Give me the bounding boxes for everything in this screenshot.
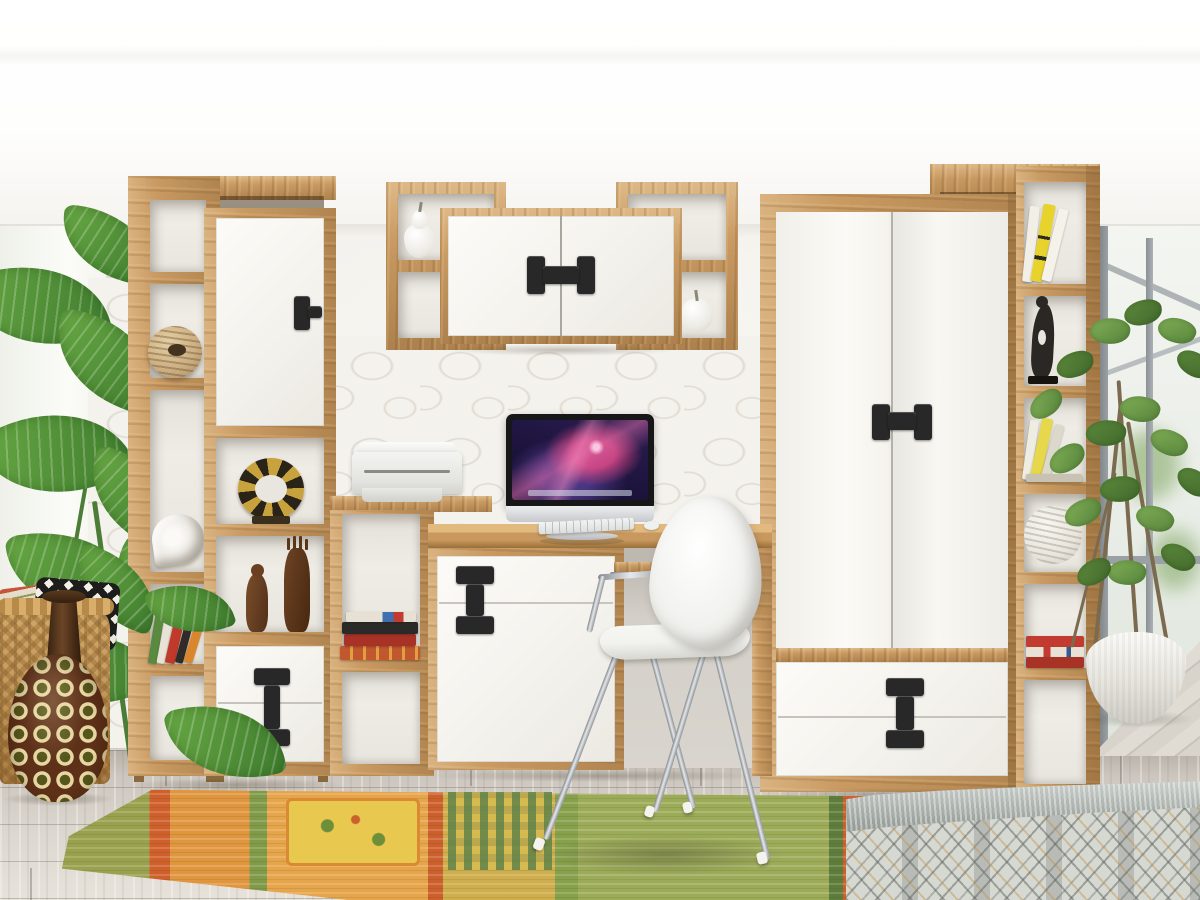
ring-ornament-base bbox=[252, 516, 290, 524]
floor-shadow bbox=[430, 770, 770, 782]
wardrobe-drawer-divider bbox=[778, 716, 1006, 718]
wall-shadow bbox=[448, 344, 678, 356]
rug-checked-band bbox=[448, 792, 552, 870]
bookcase-niche bbox=[1024, 680, 1086, 784]
rug-medallion bbox=[286, 798, 420, 866]
pedestal-handle-cap bbox=[456, 616, 494, 634]
ladder-shelf-niche bbox=[342, 672, 420, 764]
drawer-handle-cap bbox=[254, 668, 290, 685]
book-flat bbox=[340, 646, 420, 660]
black-figurine-head bbox=[1036, 296, 1048, 308]
wood-figurine bbox=[246, 574, 268, 632]
ceiling-cove-shadow bbox=[0, 46, 1200, 66]
room-photo bbox=[0, 0, 1200, 900]
pedestal-handle-stem bbox=[466, 584, 484, 616]
figurine-comb bbox=[305, 539, 308, 550]
chair-shadow bbox=[540, 834, 790, 876]
wardrobe-mid-rail bbox=[776, 648, 1008, 662]
wardrobe-handle-pad bbox=[914, 404, 932, 440]
book-flat bbox=[344, 634, 416, 646]
plank-seam bbox=[30, 868, 32, 900]
wardrobe-door-seam bbox=[891, 212, 893, 648]
left-tower-top-gap bbox=[218, 196, 324, 208]
book-flat bbox=[342, 622, 418, 634]
plank-seam bbox=[1120, 756, 1122, 786]
woven-ball-opening bbox=[168, 344, 186, 356]
imac-screen bbox=[512, 420, 648, 500]
wardrobe-handle-bar bbox=[888, 412, 916, 430]
printer-tray bbox=[362, 488, 442, 502]
cabinet-handle-pad bbox=[577, 256, 595, 294]
wood-figurine bbox=[284, 548, 310, 632]
book-flat bbox=[1026, 657, 1084, 668]
cabinet-handle-bar bbox=[543, 266, 579, 284]
left-tower-niche bbox=[150, 200, 206, 272]
drawer-handle-stem bbox=[264, 685, 280, 729]
door-handle-stub bbox=[308, 306, 322, 318]
wardrobe-drawer-handle-stem bbox=[896, 696, 914, 730]
vase-lip bbox=[42, 590, 86, 603]
wood-figurine-head bbox=[251, 564, 264, 577]
ring-ornament-hole bbox=[255, 475, 287, 503]
figurine-comb bbox=[299, 536, 302, 550]
black-figurine-hole bbox=[1038, 330, 1046, 345]
pedestal-handle-cap bbox=[456, 566, 494, 584]
ceramic-pear-top bbox=[412, 210, 427, 229]
imac-dock bbox=[528, 490, 632, 496]
figurine-comb bbox=[287, 538, 290, 550]
ceramic-apple bbox=[680, 298, 713, 332]
printer-slot bbox=[364, 470, 450, 473]
book-flat bbox=[1026, 474, 1082, 482]
figurine-comb bbox=[293, 536, 296, 550]
wardrobe-drawer-handle-cap bbox=[886, 730, 924, 748]
wardrobe-drawer-handle-cap bbox=[886, 678, 924, 696]
book-flat bbox=[346, 612, 416, 622]
mouse bbox=[644, 521, 659, 530]
black-figurine-base bbox=[1028, 376, 1058, 384]
book-flat bbox=[1026, 647, 1084, 657]
